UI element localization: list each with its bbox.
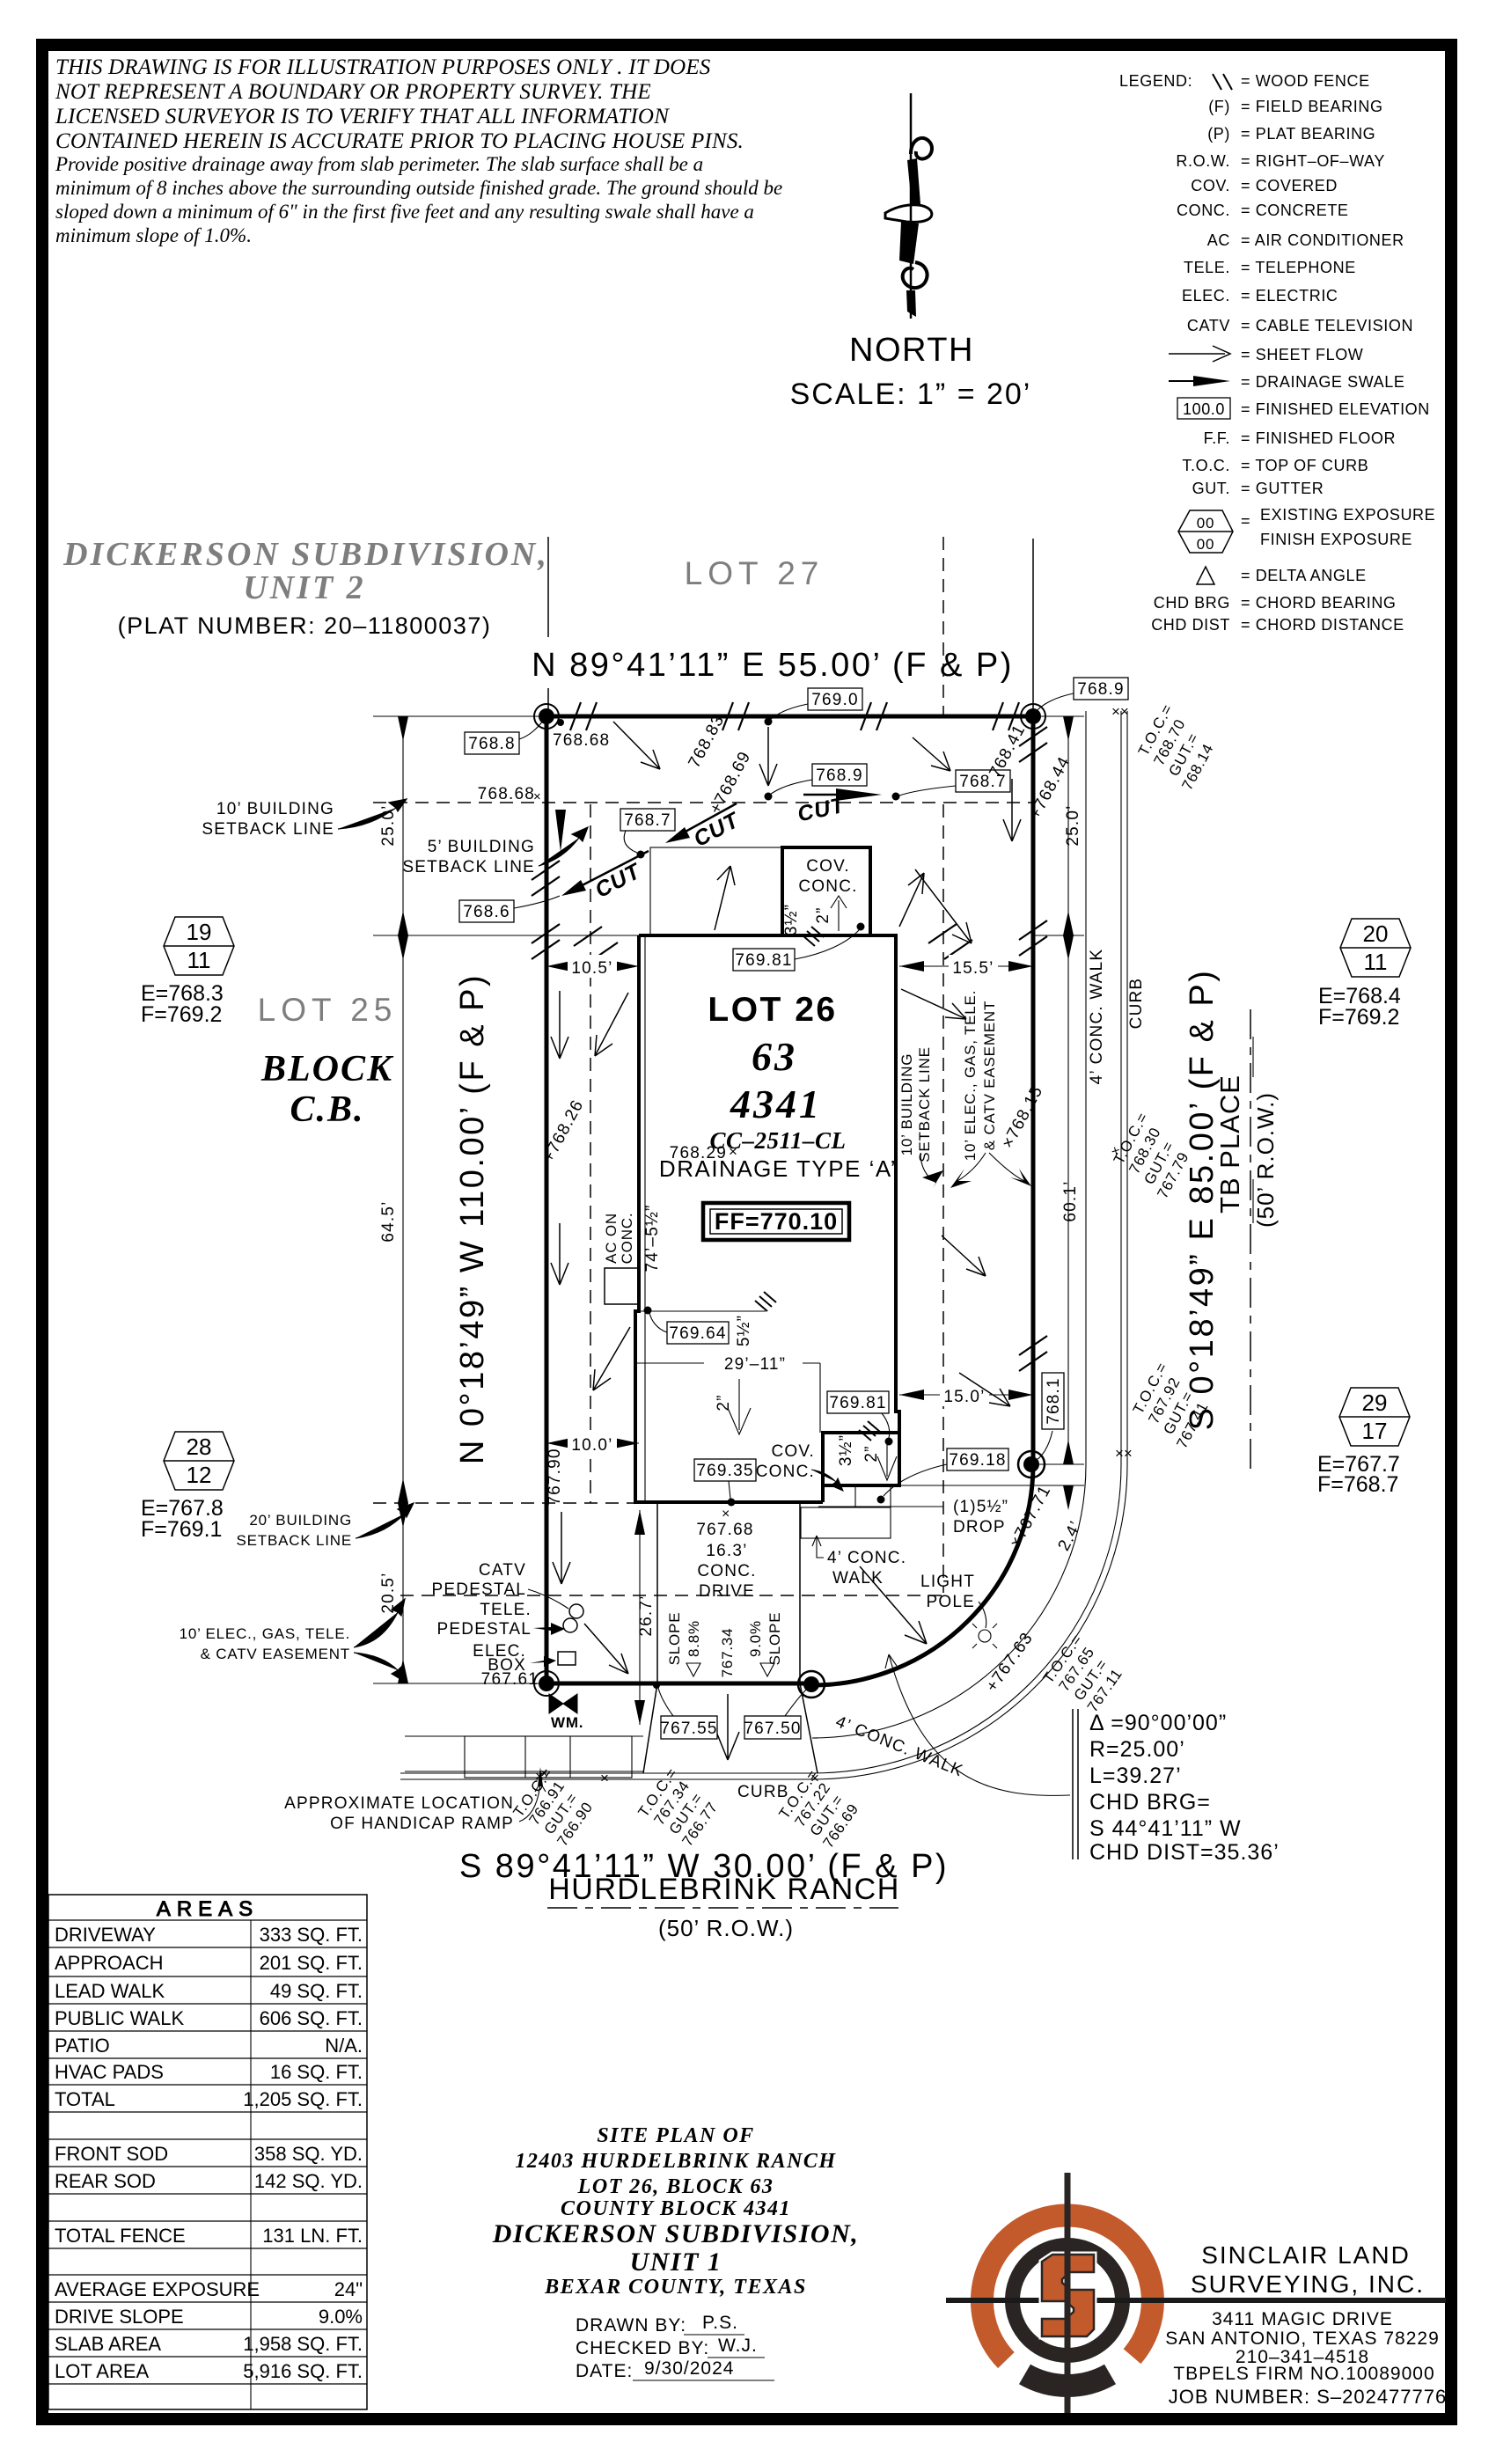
svg-text:= AIR CONDITIONER: = AIR CONDITIONER <box>1241 231 1404 249</box>
svg-text:(PLAT NUMBER: 20–11800037): (PLAT NUMBER: 20–11800037) <box>118 612 492 639</box>
svg-text:UNIT 2: UNIT 2 <box>243 569 365 606</box>
svg-text:CURB: CURB <box>737 1783 789 1801</box>
svg-text:EXISTING EXPOSURE: EXISTING EXPOSURE <box>1260 506 1435 524</box>
svg-text:= FINISHED ELEVATION: = FINISHED ELEVATION <box>1241 400 1430 418</box>
svg-text:AC ON: AC ON <box>603 1213 620 1264</box>
svg-text:AC: AC <box>1207 231 1230 249</box>
svg-text:= GUTTER: = GUTTER <box>1241 480 1324 497</box>
svg-text:N 0°18’49” W 110.00’ (F &: N 0°18’49” W 110.00’ (F & P) <box>454 973 491 1464</box>
svg-text:DRIVE SLOPE: DRIVE SLOPE <box>55 2306 184 2328</box>
svg-text:CHD DIST: CHD DIST <box>1151 616 1230 634</box>
svg-text:15.5’: 15.5’ <box>952 959 994 978</box>
svg-text:49 SQ. FT.: 49 SQ. FT. <box>270 1980 363 2002</box>
svg-text:767.50: 767.50 <box>744 1720 801 1738</box>
svg-text:00: 00 <box>1197 536 1215 553</box>
svg-text:SINCLAIR LAND: SINCLAIR LAND <box>1201 2241 1411 2269</box>
svg-text:= ELECTRIC: = ELECTRIC <box>1241 287 1338 304</box>
svg-text:= SHEET FLOW: = SHEET FLOW <box>1241 346 1363 363</box>
svg-text:F=769.1: F=769.1 <box>141 1517 222 1542</box>
svg-text:COV.: COV. <box>806 857 850 876</box>
svg-text:769.18: 769.18 <box>949 1451 1006 1470</box>
svg-text:SLOPE: SLOPE <box>766 1612 783 1666</box>
svg-text:TBPELS FIRM NO.10089000: TBPELS FIRM NO.10089000 <box>1173 2364 1434 2384</box>
svg-text:N 89°41’11” E 55.00’ (F &: N 89°41’11” E 55.00’ (F & P) <box>532 647 1014 684</box>
svg-text:9.0%: 9.0% <box>747 1620 764 1657</box>
svg-text:AVERAGE EXPOSURE: AVERAGE EXPOSURE <box>55 2278 260 2300</box>
svg-text:= DRAINAGE SWALE: = DRAINAGE SWALE <box>1241 373 1404 391</box>
svg-text:= CHORD DISTANCE: = CHORD DISTANCE <box>1241 616 1404 634</box>
svg-text:26.7’: 26.7’ <box>637 1595 656 1636</box>
svg-text:606 SQ. FT.: 606 SQ. FT. <box>260 2007 363 2029</box>
svg-text:DATE:: DATE: <box>576 2361 633 2381</box>
svg-text:769.0: 769.0 <box>811 691 859 709</box>
svg-text:28: 28 <box>187 1434 212 1460</box>
svg-text:358 SQ. YD.: 358 SQ. YD. <box>254 2143 363 2165</box>
svg-text:00: 00 <box>1197 515 1215 532</box>
svg-text:TELE.: TELE. <box>1184 259 1230 276</box>
svg-text:768.7: 768.7 <box>624 811 671 830</box>
svg-text:TB PLACE: TB PLACE <box>1214 1074 1245 1214</box>
svg-text:CONC.: CONC. <box>756 1463 815 1481</box>
svg-text:R=25.00’: R=25.00’ <box>1089 1737 1185 1762</box>
svg-text:768.9: 768.9 <box>1077 680 1125 699</box>
svg-text:3½”: 3½” <box>782 904 801 935</box>
svg-text:TOTAL FENCE: TOTAL FENCE <box>55 2225 186 2247</box>
svg-text:DRIVEWAY: DRIVEWAY <box>55 1924 156 1946</box>
svg-text:29: 29 <box>1362 1390 1388 1416</box>
svg-text:LOT AREA: LOT AREA <box>55 2360 150 2382</box>
svg-text:DICKERSON SUBDIVISION,: DICKERSON SUBDIVISION, <box>492 2219 859 2248</box>
svg-text:SETBACK LINE: SETBACK LINE <box>402 858 535 876</box>
svg-text:769.35: 769.35 <box>696 1462 753 1480</box>
svg-text:×: × <box>722 1507 730 1522</box>
svg-text:5,916 SQ. FT.: 5,916 SQ. FT. <box>243 2360 363 2382</box>
svg-text:R.O.W.: R.O.W. <box>1176 152 1230 170</box>
svg-text:DRAWN BY:: DRAWN BY: <box>576 2315 686 2336</box>
svg-text:767.68: 767.68 <box>696 1521 753 1539</box>
svg-text:LOT 27: LOT 27 <box>685 555 825 591</box>
svg-text:UNIT 1: UNIT 1 <box>630 2248 722 2277</box>
svg-text:LICENSED SURVEYOR IS TO VERIFY: LICENSED SURVEYOR IS TO VERIFY THAT ALL … <box>55 105 670 128</box>
svg-text:= WOOD FENCE: = WOOD FENCE <box>1241 72 1370 90</box>
svg-text:DICKERSON SUBDIVISION,: DICKERSON SUBDIVISION, <box>62 536 549 573</box>
svg-text:LEGEND:: LEGEND: <box>1119 72 1192 90</box>
svg-text:= CABLE TELEVISION: = CABLE TELEVISION <box>1241 317 1413 334</box>
svg-text:(F): (F) <box>1208 98 1230 115</box>
svg-text:20.5’: 20.5’ <box>379 1572 398 1613</box>
svg-text:F=769.2: F=769.2 <box>1318 1005 1399 1030</box>
svg-text:333 SQ. FT.: 333 SQ. FT. <box>260 1924 363 1946</box>
svg-text:5’ BUILDING: 5’ BUILDING <box>428 838 535 856</box>
svg-text:25.0’: 25.0’ <box>1064 804 1082 846</box>
svg-text:25.0’: 25.0’ <box>379 804 398 846</box>
svg-text:767.90: 767.90 <box>546 1448 564 1505</box>
svg-text:142 SQ. YD.: 142 SQ. YD. <box>254 2170 363 2192</box>
svg-text:P.S.: P.S. <box>702 2313 738 2333</box>
svg-text:1,205 SQ. FT.: 1,205 SQ. FT. <box>243 2088 363 2110</box>
svg-text:LOT 26: LOT 26 <box>708 991 837 1029</box>
svg-text:768.6: 768.6 <box>463 903 510 921</box>
svg-text:20’ BUILDING: 20’ BUILDING <box>249 1512 352 1529</box>
svg-text:FINISH EXPOSURE: FINISH EXPOSURE <box>1260 531 1412 548</box>
svg-text:767.55: 767.55 <box>660 1720 717 1738</box>
svg-text:12403 HURDELBRINK RANCH: 12403 HURDELBRINK RANCH <box>515 2150 836 2173</box>
svg-text:FF=770.10: FF=770.10 <box>715 1208 838 1235</box>
svg-text:12: 12 <box>187 1462 212 1488</box>
svg-text:= FINISHED FLOOR: = FINISHED FLOOR <box>1241 429 1396 447</box>
svg-text:minimum slope of 1.0%.: minimum slope of 1.0%. <box>55 224 252 246</box>
svg-text:HVAC PADS: HVAC PADS <box>55 2061 164 2083</box>
svg-text:CURB: CURB <box>1127 978 1146 1030</box>
svg-text:××: ×× <box>1115 1445 1133 1462</box>
svg-text:SAN ANTONIO, TEXAS 78229: SAN ANTONIO, TEXAS 78229 <box>1165 2328 1440 2349</box>
svg-text:767.34: 767.34 <box>719 1628 736 1678</box>
svg-text:LOT 26, BLOCK 63: LOT 26, BLOCK 63 <box>577 2175 774 2198</box>
svg-text:(50’ R.O.W.): (50’ R.O.W.) <box>1252 1092 1279 1228</box>
svg-text:DRAINAGE TYPE ‘A’: DRAINAGE TYPE ‘A’ <box>659 1155 897 1182</box>
svg-text:9/30/2024: 9/30/2024 <box>644 2358 734 2379</box>
svg-text:100.0: 100.0 <box>1183 400 1225 418</box>
svg-text:= DELTA ANGLE: = DELTA ANGLE <box>1241 567 1367 584</box>
svg-text:HURDLEBRINK RANCH: HURDLEBRINK RANCH <box>548 1873 900 1906</box>
svg-text:= TELEPHONE: = TELEPHONE <box>1241 259 1356 276</box>
svg-text:29’–11”: 29’–11” <box>724 1355 786 1374</box>
svg-text:15.0’: 15.0’ <box>943 1388 985 1406</box>
svg-text:sloped down a minimum of 6" in: sloped down a minimum of 6" in the first… <box>55 201 754 223</box>
svg-text:= CHORD BEARING: = CHORD BEARING <box>1241 594 1397 612</box>
svg-text:F=768.7: F=768.7 <box>1317 1472 1398 1497</box>
svg-text:768.1: 768.1 <box>1045 1377 1063 1425</box>
svg-text:(P): (P) <box>1207 125 1230 143</box>
svg-text:& CATV EASEMENT: & CATV EASEMENT <box>201 1646 350 1662</box>
svg-text:×: × <box>533 789 541 804</box>
svg-text:LIGHT: LIGHT <box>920 1573 975 1591</box>
svg-text:131 LN. FT.: 131 LN. FT. <box>262 2225 363 2247</box>
svg-text:64.5’: 64.5’ <box>379 1200 398 1242</box>
svg-text:THIS DRAWING IS FOR ILLUSTRATI: THIS DRAWING IS FOR ILLUSTRATION PURPOSE… <box>55 55 711 79</box>
svg-text:= RIGHT–OF–WAY: = RIGHT–OF–WAY <box>1241 152 1385 170</box>
svg-text:SURVEYING, INC.: SURVEYING, INC. <box>1191 2270 1425 2298</box>
svg-text:9.0%: 9.0% <box>319 2306 363 2328</box>
svg-text:CHD DIST=35.36’: CHD DIST=35.36’ <box>1089 1840 1280 1865</box>
svg-text:Δ =90°00’00”: Δ =90°00’00” <box>1089 1711 1227 1735</box>
svg-text:16.3’: 16.3’ <box>706 1542 747 1560</box>
svg-text:CHECKED BY:: CHECKED BY: <box>576 2338 709 2358</box>
svg-text:4341: 4341 <box>730 1082 822 1126</box>
svg-text:CONC.: CONC. <box>798 877 857 896</box>
svg-text:LOT 25: LOT 25 <box>258 992 398 1028</box>
svg-text:20: 20 <box>1363 920 1389 947</box>
svg-text:19: 19 <box>187 919 212 945</box>
svg-text:769.64: 769.64 <box>669 1324 726 1343</box>
svg-text:CONC.: CONC. <box>697 1562 756 1580</box>
svg-text:769.81: 769.81 <box>735 951 792 970</box>
svg-text:PUBLIC WALK: PUBLIC WALK <box>55 2007 184 2029</box>
svg-text:CHD BRG=: CHD BRG= <box>1089 1790 1211 1815</box>
svg-text:T.O.C.: T.O.C. <box>1182 457 1230 474</box>
svg-text:C.B.: C.B. <box>290 1089 364 1130</box>
svg-text:63: 63 <box>752 1034 797 1079</box>
svg-text:768.68: 768.68 <box>553 731 610 750</box>
svg-text:COUNTY BLOCK 4341: COUNTY BLOCK 4341 <box>561 2197 791 2220</box>
svg-text:F.F.: F.F. <box>1204 429 1230 447</box>
svg-text:DRIVE: DRIVE <box>699 1582 755 1601</box>
svg-text:SETBACK LINE: SETBACK LINE <box>916 1046 933 1162</box>
svg-text:11: 11 <box>187 947 211 973</box>
svg-text:= CONCRETE: = CONCRETE <box>1241 202 1349 219</box>
svg-text:APPROACH: APPROACH <box>55 1952 163 1974</box>
svg-text:= TOP OF CURB: = TOP OF CURB <box>1241 457 1368 474</box>
svg-text:4’ CONC. WALK: 4’ CONC. WALK <box>1088 949 1106 1085</box>
svg-text:S 44°41’11” W: S 44°41’11” W <box>1089 1816 1242 1841</box>
svg-text:BEXAR COUNTY, TEXAS: BEXAR COUNTY, TEXAS <box>544 2276 807 2299</box>
svg-text:(1)5½”: (1)5½” <box>953 1498 1008 1516</box>
svg-text:74’–5½”: 74’–5½” <box>643 1204 662 1272</box>
svg-text:Provide positive drainage away: Provide positive drainage away from slab… <box>55 153 703 175</box>
svg-text:SETBACK LINE: SETBACK LINE <box>202 820 334 839</box>
svg-text:WALK: WALK <box>832 1569 884 1588</box>
svg-text:TOTAL: TOTAL <box>55 2088 115 2110</box>
svg-text:5½”: 5½” <box>735 1315 753 1346</box>
svg-text:GUT.: GUT. <box>1192 480 1230 497</box>
svg-text:NOT REPRESENT A BOUNDARY OR PR: NOT REPRESENT A BOUNDARY OR PROPERTY SUR… <box>55 80 651 104</box>
svg-text:10’ ELEC., GAS, TELE.: 10’ ELEC., GAS, TELE. <box>180 1625 350 1642</box>
svg-text:2”: 2” <box>814 906 832 923</box>
svg-text:3½”: 3½” <box>837 1434 855 1466</box>
svg-text:N/A.: N/A. <box>325 2035 363 2057</box>
svg-text:SITE PLAN OF: SITE PLAN OF <box>597 2124 754 2147</box>
svg-text:APPROXIMATE LOCATION: APPROXIMATE LOCATION <box>284 1794 514 1813</box>
svg-text:REAR SOD: REAR SOD <box>55 2170 156 2192</box>
svg-text:CATV: CATV <box>1187 317 1230 334</box>
svg-text:8.8%: 8.8% <box>686 1620 702 1657</box>
svg-text:CONTAINED HEREIN IS ACCURATE P: CONTAINED HEREIN IS ACCURATE PRIOR TO PL… <box>55 129 744 153</box>
svg-text:= COVERED: = COVERED <box>1241 177 1338 194</box>
svg-text:SLOPE: SLOPE <box>666 1612 683 1666</box>
svg-text:201 SQ. FT.: 201 SQ. FT. <box>260 1952 363 1974</box>
svg-text:CONC.: CONC. <box>1177 202 1230 219</box>
svg-text:CHD BRG: CHD BRG <box>1154 594 1230 612</box>
svg-text:NORTH: NORTH <box>849 332 974 369</box>
svg-text:10.0’: 10.0’ <box>571 1436 612 1455</box>
svg-text:FRONT SOD: FRONT SOD <box>55 2143 168 2165</box>
svg-text:768.9: 768.9 <box>816 766 863 785</box>
svg-text:3411 MAGIC DRIVE: 3411 MAGIC DRIVE <box>1212 2309 1393 2329</box>
svg-text:768.68: 768.68 <box>478 785 535 803</box>
svg-text:767.61: 767.61 <box>481 1670 539 1689</box>
svg-text:COV.: COV. <box>1191 177 1230 194</box>
svg-text:60.1’: 60.1’ <box>1061 1180 1080 1221</box>
svg-text:& CATV EASEMENT: & CATV EASEMENT <box>981 1001 998 1150</box>
svg-text:CONC.: CONC. <box>619 1213 635 1265</box>
svg-text:AREAS: AREAS <box>157 1897 259 1921</box>
svg-text:11: 11 <box>1364 949 1388 975</box>
svg-text:= PLAT BEARING: = PLAT BEARING <box>1241 125 1375 143</box>
svg-text:10’ BUILDING: 10’ BUILDING <box>216 800 334 818</box>
svg-text:××: ×× <box>1111 703 1129 720</box>
svg-text:24": 24" <box>334 2278 363 2300</box>
svg-text:BLOCK: BLOCK <box>260 1049 394 1089</box>
svg-text:(50’ R.O.W.): (50’ R.O.W.) <box>658 1915 794 1941</box>
svg-text:17: 17 <box>1362 1418 1388 1444</box>
svg-text:10’ ELEC., GAS, TELE.: 10’ ELEC., GAS, TELE. <box>962 990 979 1161</box>
svg-text:W.J.: W.J. <box>718 2336 758 2356</box>
svg-text:768.8: 768.8 <box>468 735 516 753</box>
svg-text:PEDESTAL: PEDESTAL <box>432 1580 526 1599</box>
svg-text:PEDESTAL: PEDESTAL <box>437 1620 532 1639</box>
svg-text:POLE: POLE <box>927 1593 976 1611</box>
svg-text:2”: 2” <box>862 1445 881 1462</box>
svg-text:CATV: CATV <box>479 1561 526 1580</box>
svg-text:minimum of 8 inches above the: minimum of 8 inches above the surroundin… <box>55 177 782 199</box>
svg-text:ELEC.: ELEC. <box>1182 287 1230 304</box>
svg-text:OF HANDICAP RAMP: OF HANDICAP RAMP <box>330 1815 514 1833</box>
svg-text:16 SQ. FT.: 16 SQ. FT. <box>270 2061 363 2083</box>
svg-text:1,958 SQ. FT.: 1,958 SQ. FT. <box>243 2333 363 2355</box>
svg-text:SLAB AREA: SLAB AREA <box>55 2333 161 2355</box>
svg-text:PATIO: PATIO <box>55 2035 110 2057</box>
svg-text:TELE.: TELE. <box>480 1601 532 1619</box>
svg-text:JOB NUMBER: S–202477776: JOB NUMBER: S–202477776 <box>1169 2386 1448 2408</box>
svg-text:L=39.27’: L=39.27’ <box>1089 1764 1182 1788</box>
svg-text:SETBACK LINE: SETBACK LINE <box>237 1532 352 1549</box>
svg-text:LEAD WALK: LEAD WALK <box>55 1980 165 2002</box>
svg-text:= FIELD BEARING: = FIELD BEARING <box>1241 98 1383 115</box>
svg-text:DROP: DROP <box>953 1518 1006 1536</box>
svg-text:=: = <box>1241 512 1250 530</box>
svg-text:SCALE: 1” = 20’: SCALE: 1” = 20’ <box>790 378 1032 411</box>
svg-text:2”: 2” <box>715 1394 733 1411</box>
svg-text:WM.: WM. <box>551 1714 583 1731</box>
svg-text:10’ BUILDING: 10’ BUILDING <box>898 1053 915 1156</box>
svg-text:4’ CONC.: 4’ CONC. <box>827 1549 906 1567</box>
svg-text:769.81: 769.81 <box>829 1394 886 1412</box>
svg-text:10.5’: 10.5’ <box>571 959 612 978</box>
svg-text:COV.: COV. <box>771 1442 815 1461</box>
svg-text:F=769.2: F=769.2 <box>141 1002 222 1027</box>
